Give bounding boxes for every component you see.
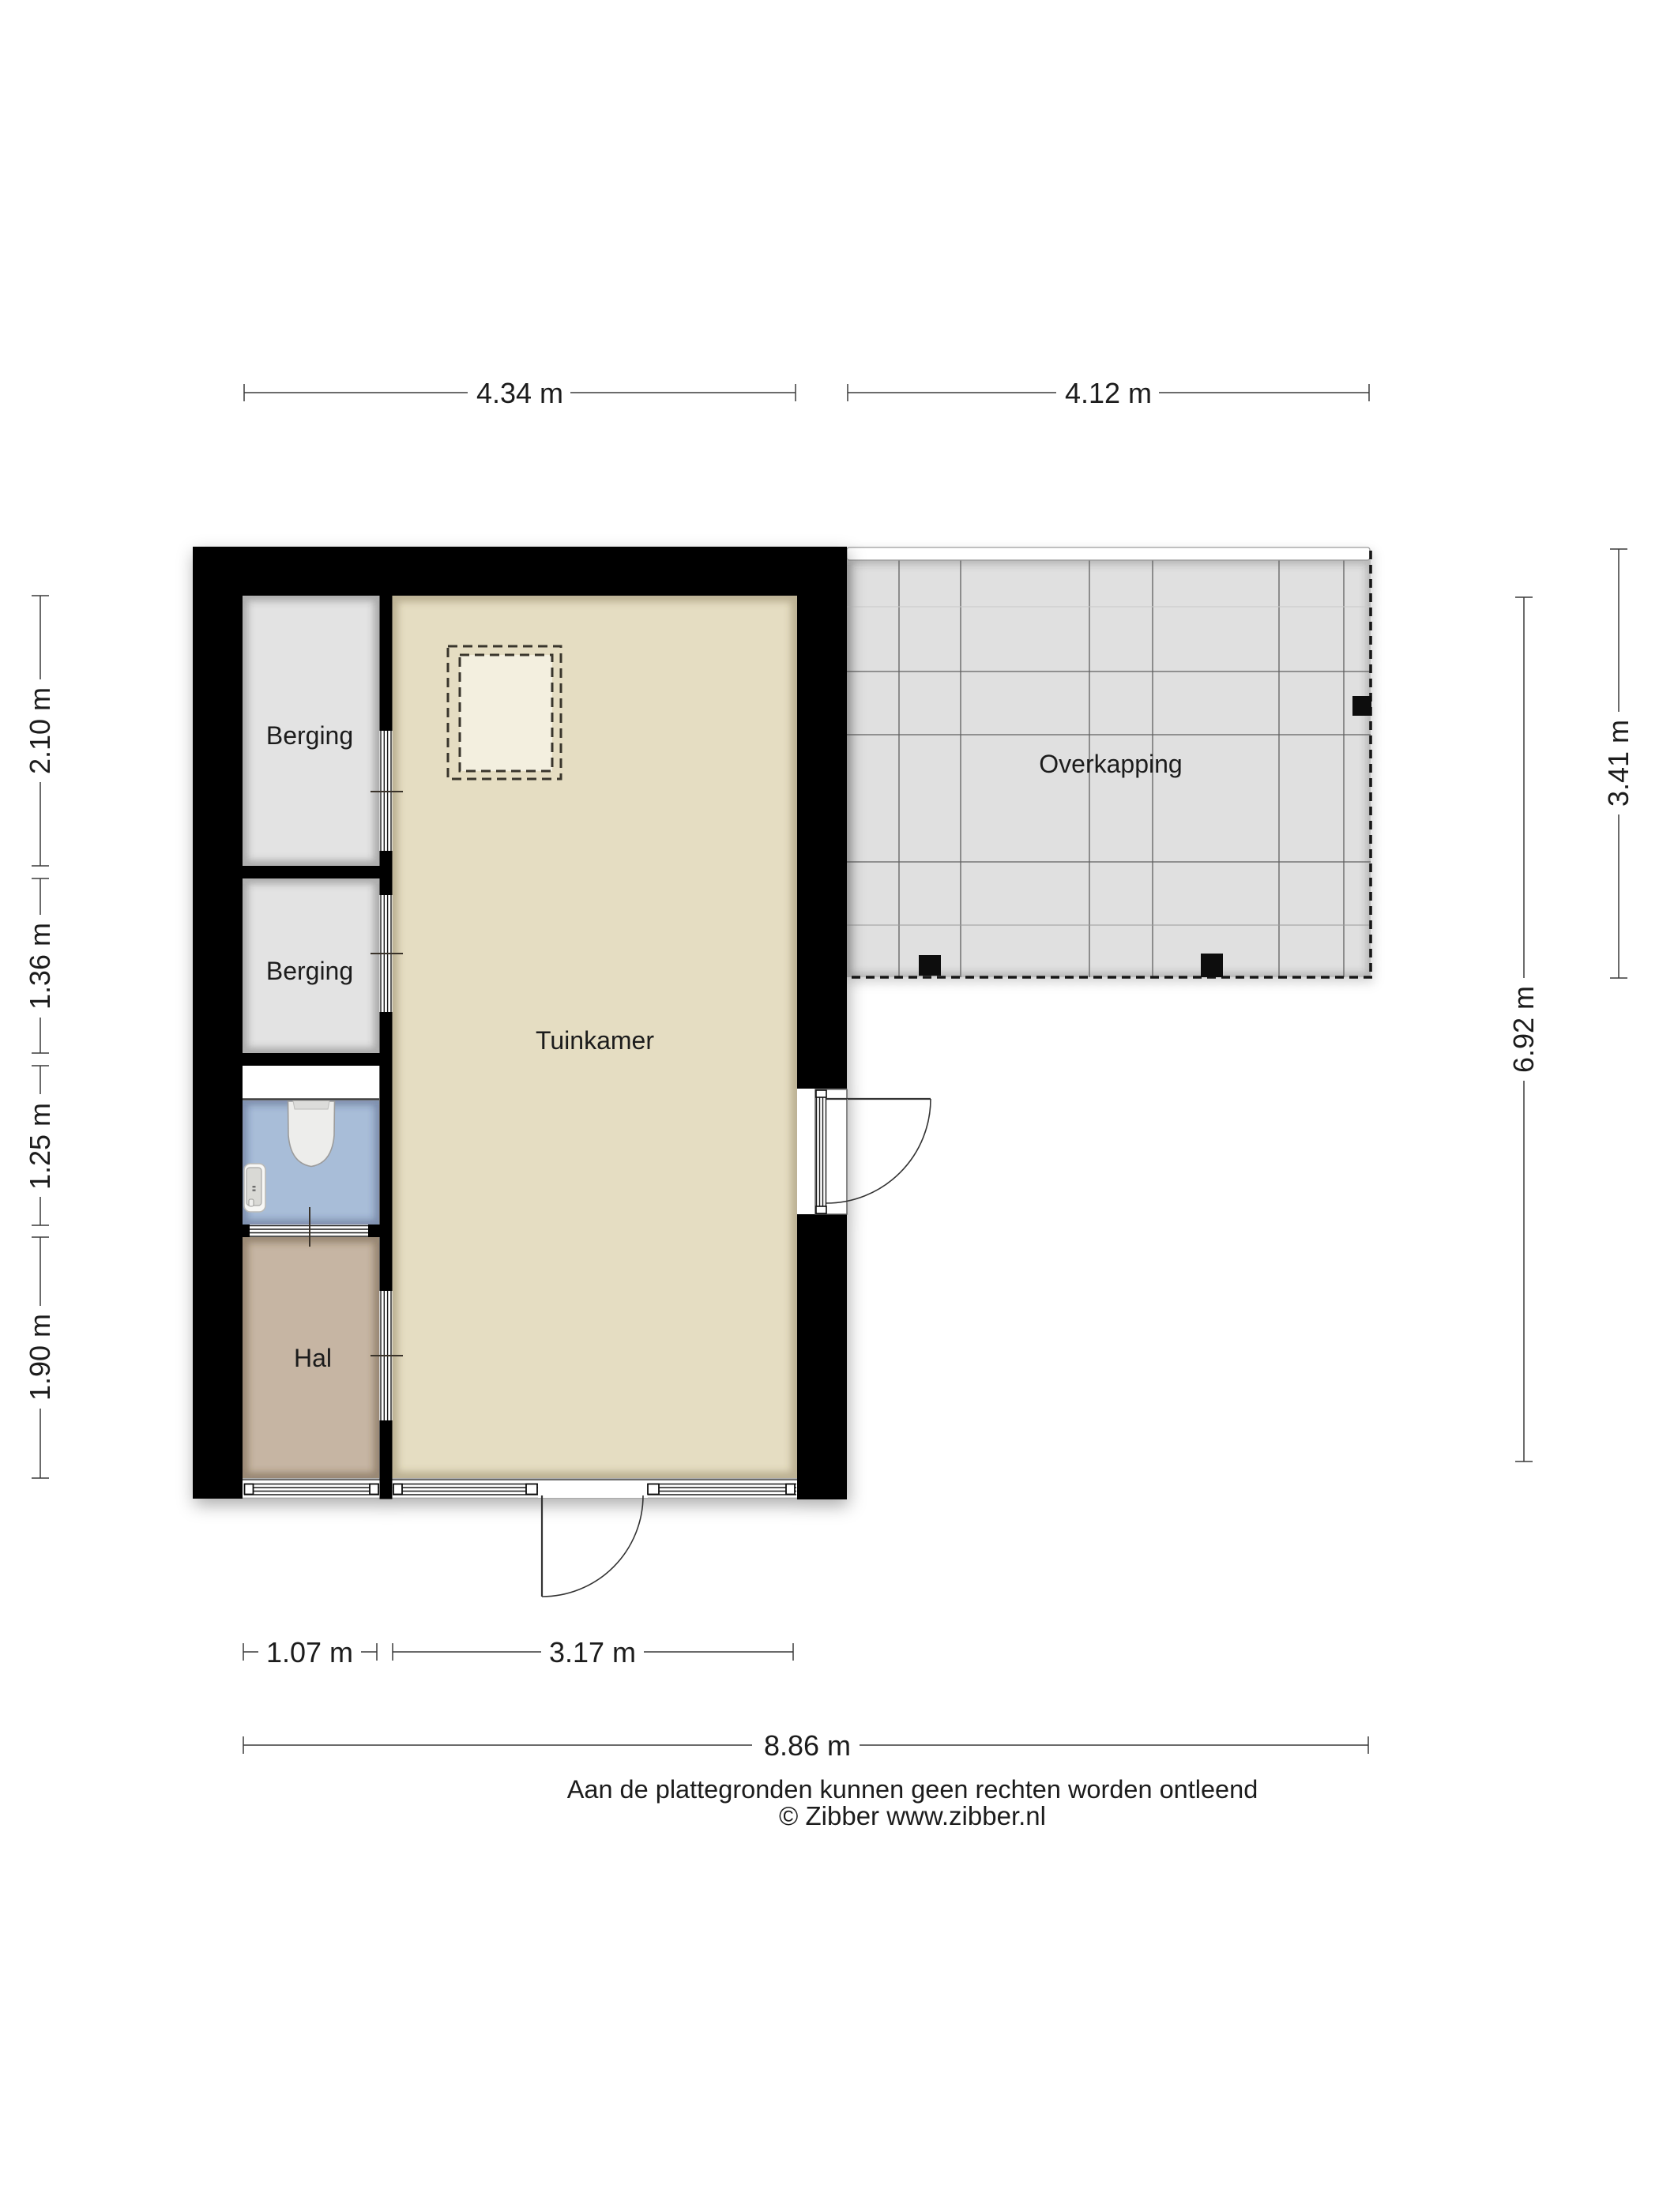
svg-text:4.34 m: 4.34 m	[476, 377, 563, 409]
svg-text:1.36 m: 1.36 m	[24, 923, 56, 1010]
svg-text:Aan de plattegronden kunnen ge: Aan de plattegronden kunnen geen rechten…	[567, 1775, 1258, 1804]
svg-text:8.86 m: 8.86 m	[764, 1729, 851, 1762]
svg-text:3.41 m: 3.41 m	[1602, 720, 1635, 807]
svg-text:1.25 m: 1.25 m	[24, 1103, 56, 1190]
svg-text:Berging: Berging	[266, 957, 353, 985]
svg-text:3.17 m: 3.17 m	[549, 1636, 636, 1668]
svg-text:Overkapping: Overkapping	[1039, 750, 1182, 778]
svg-text:Tuinkamer: Tuinkamer	[536, 1026, 654, 1055]
svg-text:1.07 m: 1.07 m	[266, 1636, 353, 1668]
svg-text:© Zibber www.zibber.nl: © Zibber www.zibber.nl	[779, 1801, 1046, 1830]
svg-text:6.92 m: 6.92 m	[1507, 986, 1540, 1073]
svg-text:1.90 m: 1.90 m	[24, 1314, 56, 1401]
svg-text:Hal: Hal	[294, 1344, 332, 1372]
svg-text:2.10 m: 2.10 m	[24, 687, 56, 774]
svg-text:4.12 m: 4.12 m	[1065, 377, 1152, 409]
svg-text:Berging: Berging	[266, 721, 353, 750]
